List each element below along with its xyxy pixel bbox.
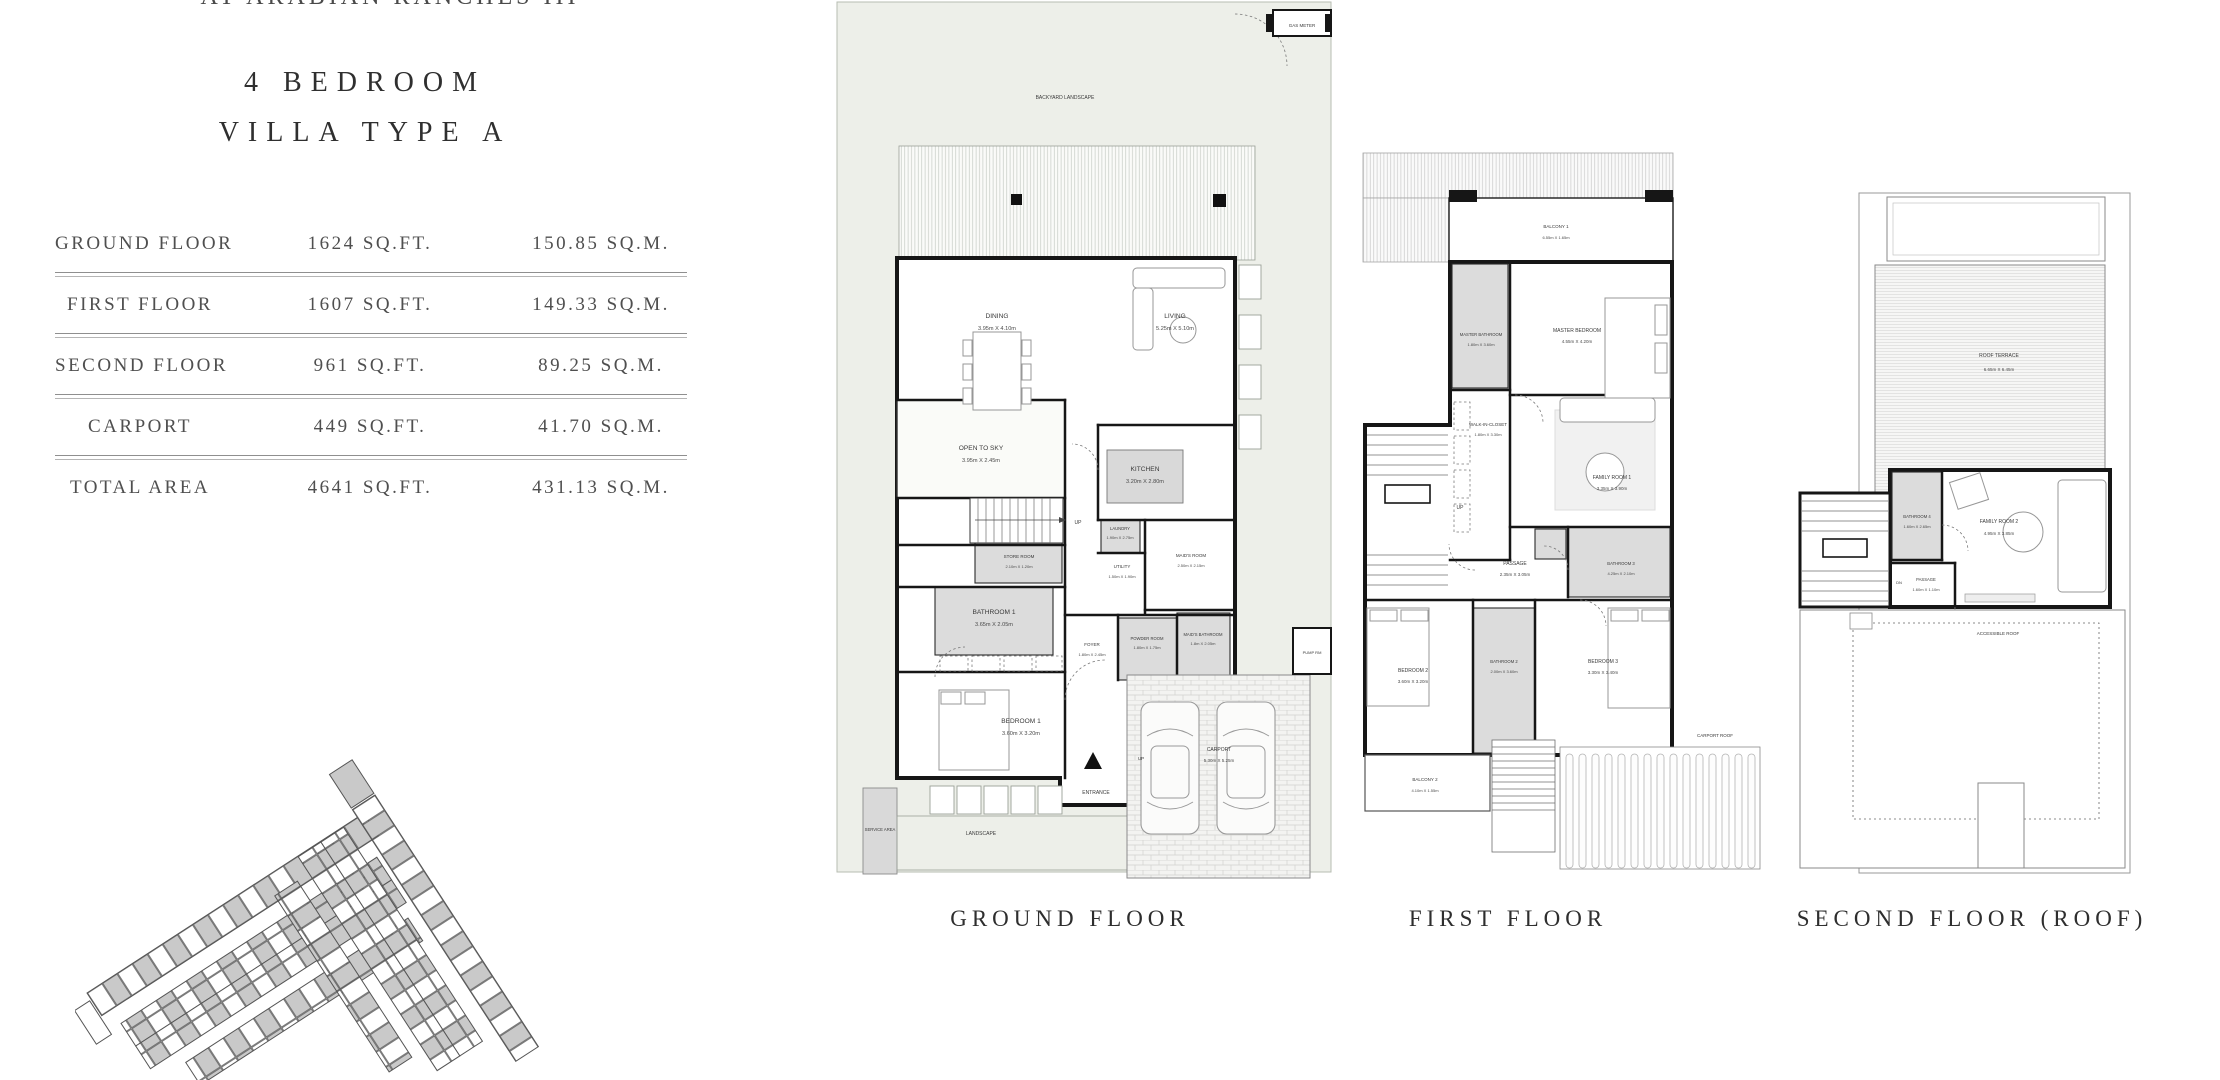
garden-steps xyxy=(930,786,1062,814)
room-label-kitchen: KITCHEN xyxy=(1131,466,1160,473)
room-dims-laundry: 1.90m X 2.75m xyxy=(1106,535,1134,540)
table-row: SECOND FLOOR 961 SQ.FT. 89.25 SQ.M. xyxy=(55,338,687,394)
row-sqm: 431.13 SQ.M. xyxy=(515,477,687,499)
room-dims-open-to-sky: 3.95m X 2.45m xyxy=(962,458,1000,464)
dining-furniture xyxy=(963,332,1031,410)
shaft xyxy=(1535,529,1566,559)
balcony-2 xyxy=(1365,755,1490,811)
master-bed xyxy=(1605,298,1670,398)
room-label-bedroom-2: BEDROOM 2 xyxy=(1398,668,1428,674)
room-label-laundry: LAUNDRY xyxy=(1110,526,1130,531)
row-sqm: 150.85 SQ.M. xyxy=(515,233,687,255)
bedroom2-bed xyxy=(1367,608,1429,706)
room-dims-passage: 1.60m X 1.10m xyxy=(1912,587,1940,592)
room-label-family-room-1: FAMILY ROOM 1 xyxy=(1593,475,1632,481)
room-dims-master-bathroom: 1.80m X 3.60m xyxy=(1467,342,1495,347)
row-sqm: 41.70 SQ.M. xyxy=(515,416,687,438)
room-label-family-room-2: FAMILY ROOM 2 xyxy=(1980,519,2019,525)
service-area-label: SERVICE AREA xyxy=(865,827,896,832)
accessible-roof-label: ACCESSIBLE ROOF xyxy=(1977,631,2020,636)
room-label-foyer: FOYER xyxy=(1084,642,1100,647)
room-label-walk-in-closet: WALK-IN-CLOSET xyxy=(1469,422,1507,427)
room-dims-living: 5.25m X 5.10m xyxy=(1156,326,1194,332)
room-dims-roof-terrace: 6.65m X 6.45m xyxy=(1984,367,2015,372)
row-sqft: 449 SQ.FT. xyxy=(225,416,515,438)
room-label-dining: DINING xyxy=(985,313,1008,320)
brochure-page: { "header": { "development": "AT ARABIAN… xyxy=(0,0,2220,1080)
up-label: UP xyxy=(1138,756,1144,761)
room-label-living: LIVING xyxy=(1164,313,1186,320)
column xyxy=(1213,194,1226,207)
stairs xyxy=(970,498,1066,543)
ground-floor-plan: BACKYARD LANDSCAPE GAS METER DINING 3.95… xyxy=(835,0,1345,910)
accessible-roof xyxy=(1800,610,2125,868)
room-label-maids-room: MAID'S ROOM xyxy=(1176,553,1207,558)
first-floor-caption: FIRST FLOOR xyxy=(1358,906,1658,932)
room-label-bathroom-1: BATHROOM 1 xyxy=(972,609,1015,616)
room-label-passage: PASSAGE xyxy=(1916,577,1936,582)
site-map xyxy=(75,755,700,1080)
family-room1-furniture xyxy=(1555,398,1655,510)
room-label-utility: UTILITY xyxy=(1114,564,1131,569)
room-dims-family-room-2: 4.95m X 3.85m xyxy=(1984,531,2015,536)
landscape-label: LANDSCAPE xyxy=(966,831,997,837)
column xyxy=(1011,194,1022,205)
room-label-bathroom-3: BATHROOM 3 xyxy=(1607,561,1635,566)
ground-floor-caption: GROUND FLOOR xyxy=(900,906,1240,932)
row-label: CARPORT xyxy=(55,416,225,438)
first-floor-plan: BALCONY 1 6.55m X 1.65m MASTER BATHROOM … xyxy=(1355,140,1765,900)
room-dims-kitchen: 3.20m X 2.80m xyxy=(1126,479,1164,485)
row-sqm: 89.25 SQ.M. xyxy=(515,355,687,377)
roof-pergola xyxy=(1363,153,1673,198)
title-line-2: VILLA TYPE A xyxy=(150,108,580,158)
room-dims-bathroom-1: 3.65m X 2.05m xyxy=(975,622,1013,628)
bedroom3-bed xyxy=(1608,608,1670,708)
room-label-maids-bathroom: MAID'S BATHROOM xyxy=(1183,632,1223,637)
dn-label: DN xyxy=(1896,580,1902,585)
roof-pergola xyxy=(1363,198,1449,262)
room-dims-utility: 1.50m X 1.90m xyxy=(1108,574,1136,579)
room-dims-bedroom-1: 3.60m X 3.20m xyxy=(1002,731,1040,737)
up-label: UP xyxy=(1457,505,1465,511)
bathroom-2 xyxy=(1473,608,1535,753)
carport-roof xyxy=(1560,747,1760,869)
room-dims-master-bedroom: 4.55m X 4.20m xyxy=(1562,339,1593,344)
deck-pergola xyxy=(899,146,1255,260)
room-label-roof-terrace: ROOF TERRACE xyxy=(1979,353,2019,359)
gas-meter-label: GAS METER xyxy=(1289,23,1316,28)
second-floor-plan: ROOF TERRACE 6.65m X 6.45m BATHROOM 4 1.… xyxy=(1795,185,2135,900)
carport-roof-label: CARPORT ROOF xyxy=(1697,733,1733,738)
up-label: UP xyxy=(1075,520,1083,526)
room-dims-bathroom-4: 1.60m X 2.65m xyxy=(1903,524,1931,529)
kitchen-island xyxy=(1107,450,1183,503)
row-sqft: 1624 SQ.FT. xyxy=(225,233,515,255)
room-dims-bedroom-3: 3.30m X 3.40m xyxy=(1588,670,1619,675)
car-icon xyxy=(1141,702,1199,834)
row-label: FIRST FLOOR xyxy=(55,294,225,316)
backyard-label: BACKYARD LANDSCAPE xyxy=(1036,95,1095,101)
room-label-powder-room: POWDER ROOM xyxy=(1130,636,1164,641)
room-dims-balcony-1: 6.55m X 1.65m xyxy=(1542,235,1570,240)
room-label-bedroom-3: BEDROOM 3 xyxy=(1588,659,1618,665)
row-label: SECOND FLOOR xyxy=(55,355,225,377)
room-dims-bathroom-2: 2.00m X 3.60m xyxy=(1490,669,1518,674)
room-dims-family-room-1: 3.35m X 3.90m xyxy=(1597,486,1628,491)
exterior-stairs xyxy=(1492,740,1555,852)
bathroom-1 xyxy=(935,587,1053,655)
row-label: GROUND FLOOR xyxy=(55,233,225,255)
table-row: CARPORT 449 SQ.FT. 41.70 SQ.M. xyxy=(55,399,687,455)
room-dims-powder-room: 1.80m X 1.75m xyxy=(1133,645,1161,650)
entrance-label: ENTRANCE xyxy=(1082,790,1110,796)
room-label-master-bedroom: MASTER BEDROOM xyxy=(1553,328,1601,334)
row-sqm: 149.33 SQ.M. xyxy=(515,294,687,316)
master-bathroom xyxy=(1452,264,1508,388)
room-dims-balcony-2: 4.10m X 1.55m xyxy=(1411,788,1439,793)
area-table: GROUND FLOOR 1624 SQ.FT. 150.85 SQ.M. FI… xyxy=(55,216,687,516)
row-sqft: 1607 SQ.FT. xyxy=(225,294,515,316)
store-room xyxy=(975,542,1062,583)
room-dims-foyer: 1.80m X 2.45m xyxy=(1078,652,1106,657)
room-dims-carport: 5.30m X 5.25m xyxy=(1204,758,1235,763)
room-label-master-bathroom: MASTER BATHROOM xyxy=(1460,332,1503,337)
room-dims-maids-room: 2.50m X 2.15m xyxy=(1177,563,1205,568)
carport xyxy=(1127,675,1310,878)
page-title: 4 BEDROOM VILLA TYPE A xyxy=(150,58,580,158)
room-label-bathroom-4: BATHROOM 4 xyxy=(1903,514,1931,519)
room-label-store-room: STORE ROOM xyxy=(1004,554,1035,559)
car-icon xyxy=(1217,702,1275,834)
room-label-balcony-1: BALCONY 1 xyxy=(1543,224,1569,229)
development-name: AT ARABIAN RANCHES III xyxy=(165,0,615,11)
row-sqft: 961 SQ.FT. xyxy=(225,355,515,377)
table-row: GROUND FLOOR 1624 SQ.FT. 150.85 SQ.M. xyxy=(55,216,687,272)
room-label-bathroom-2: BATHROOM 2 xyxy=(1490,659,1518,664)
row-sqft: 4641 SQ.FT. xyxy=(225,477,515,499)
second-floor-caption: SECOND FLOOR (ROOF) xyxy=(1772,906,2172,932)
table-row: FIRST FLOOR 1607 SQ.FT. 149.33 SQ.M. xyxy=(55,277,687,333)
pump-room-label: PUMP RM xyxy=(1303,650,1322,655)
room-dims-maids-bathroom: 1.8m X 2.05m xyxy=(1191,641,1217,646)
room-dims-walk-in-closet: 1.80m X 3.30m xyxy=(1474,432,1502,437)
room-dims-bedroom-2: 3.60m X 3.20m xyxy=(1398,679,1429,684)
room-label-passage: PASSAGE xyxy=(1503,561,1527,567)
room-dims-bathroom-3: 4.25m X 2.10m xyxy=(1607,571,1635,576)
table-row: TOTAL AREA 4641 SQ.FT. 431.13 SQ.M. xyxy=(55,460,687,516)
room-label-balcony-2: BALCONY 2 xyxy=(1412,777,1438,782)
room-dims-dining: 3.95m X 4.10m xyxy=(978,326,1016,332)
room-dims-store-room: 2.10m X 1.20m xyxy=(1005,564,1033,569)
room-label-open-to-sky: OPEN TO SKY xyxy=(959,445,1004,452)
room-label-carport: CARPORT xyxy=(1207,747,1231,753)
title-line-1: 4 BEDROOM xyxy=(150,58,580,108)
room-label-bedroom-1: BEDROOM 1 xyxy=(1001,718,1041,725)
row-label: TOTAL AREA xyxy=(55,477,225,499)
room-dims-passage: 2.35m X 3.05m xyxy=(1500,572,1531,577)
parapet xyxy=(1887,197,2105,261)
